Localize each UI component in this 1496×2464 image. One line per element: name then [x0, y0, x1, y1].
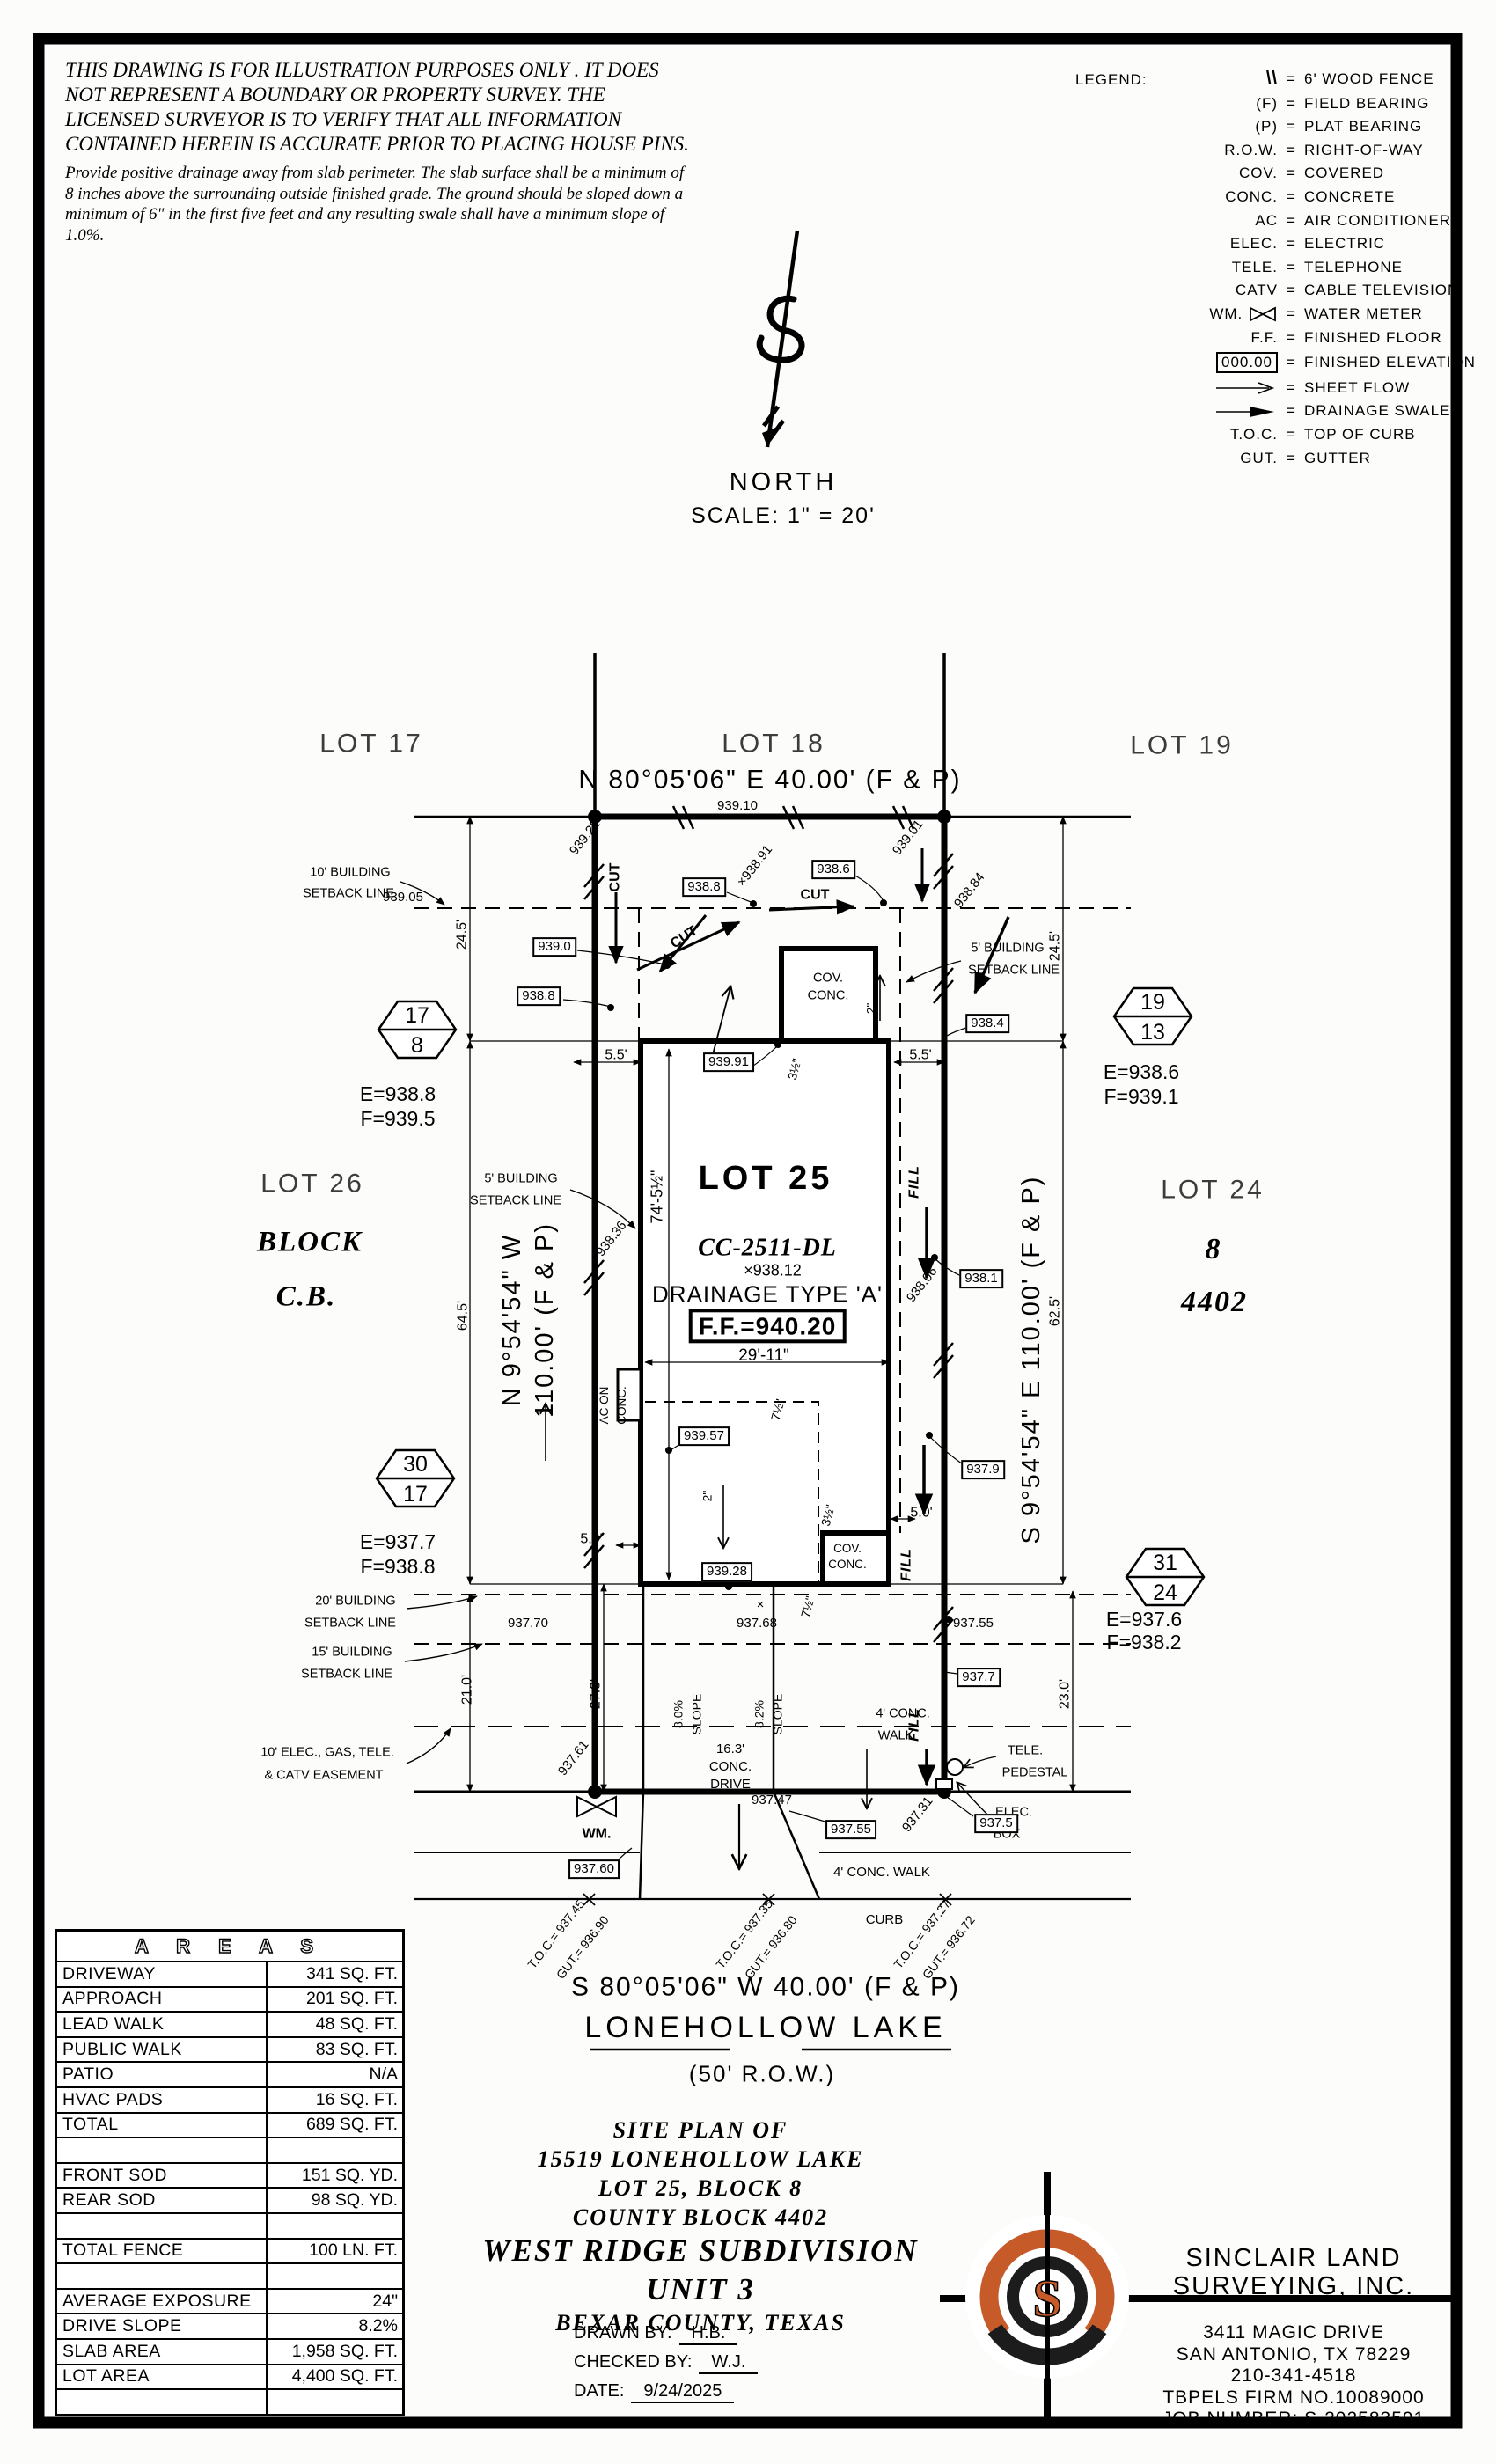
plan-label: S 80°05'06" W 40.00' (F & P)	[571, 1973, 960, 2001]
plan-label: CC-2511-DL	[698, 1235, 837, 1260]
plan-label: N 80°05'06" E 40.00' (F & P)	[578, 766, 961, 794]
plan-label: 938.6	[811, 860, 855, 879]
plan-label: FILL	[900, 1548, 915, 1581]
plan-label: 937.60	[568, 1859, 620, 1879]
plan-label: 938.84	[952, 870, 988, 911]
plan-label: ×	[757, 1598, 765, 1612]
plan-label: WM.	[583, 1828, 612, 1843]
plan-label: 939.01	[891, 818, 927, 858]
plan-label: CUT	[801, 889, 830, 904]
plan-label: 8.0%	[672, 1700, 686, 1728]
plan-label: F=939.1	[1104, 1086, 1178, 1107]
plan-label: 15' BUILDING	[312, 1646, 392, 1659]
plan-label: 5.0'	[580, 1533, 602, 1548]
plan-label: LOT 26	[260, 1170, 364, 1198]
plan-label: F=938.2	[1106, 1632, 1181, 1653]
plan-label: CURB	[866, 1913, 904, 1927]
plan-label: E=938.8	[360, 1083, 436, 1104]
plan-label: CONC.	[828, 1558, 867, 1571]
plan-label: 5.5'	[605, 1049, 627, 1064]
plan-label: CUT	[609, 863, 624, 892]
plan-label: AC ON	[598, 1387, 611, 1425]
plan-label: 5' BUILDING	[484, 1172, 557, 1185]
plan-label: SETBACK LINE	[470, 1194, 561, 1207]
plan-label: 24.5'	[456, 920, 471, 950]
plan-label: C.B.	[276, 1282, 337, 1313]
plan-label: 937.61	[556, 1738, 592, 1778]
plan-label: 2"	[865, 1003, 878, 1015]
plan-label: E=937.7	[360, 1531, 436, 1552]
survey-sheet: 178191330173124 S THIS DRAWING IS FOR IL…	[0, 0, 1496, 2464]
plan-label: 10' BUILDING	[310, 866, 390, 879]
plan-label: CONC.	[616, 1386, 628, 1425]
plan-label: CUT	[669, 924, 701, 952]
plan-label: 939.22	[568, 818, 604, 858]
plan-label: 74'-5½"	[649, 1170, 666, 1224]
plan-label: ×938.91	[735, 843, 775, 890]
plan-label: 938.06	[905, 1265, 941, 1305]
plan-label: CONC.	[709, 1760, 752, 1774]
plan-label: 939.28	[701, 1562, 752, 1581]
plan-label: 8	[1206, 1234, 1221, 1265]
plan-label: E=937.6	[1106, 1609, 1182, 1630]
plan-label: 10' ELEC., GAS, TELE.	[260, 1746, 394, 1759]
plan-label: 939.10	[717, 799, 758, 813]
plan-label: 939.0	[532, 937, 576, 957]
plan-label: 5.0'	[910, 1507, 932, 1522]
plan-label: ×938.12	[744, 1263, 802, 1280]
plan-label: SETBACK LINE	[968, 964, 1060, 977]
plan-label: DRAINAGE TYPE 'A'	[652, 1282, 883, 1306]
plan-label: 3½"	[819, 1503, 838, 1527]
plan-label: 64.5'	[457, 1301, 472, 1331]
plan-label: F.F.=940.20	[689, 1309, 847, 1343]
plan-label: 29'-11"	[738, 1347, 789, 1365]
plan-label: 23.0'	[1059, 1679, 1074, 1709]
plan-label: 110.00' (F & P)	[532, 1222, 558, 1418]
plan-label: 937.55	[953, 1617, 994, 1631]
plan-label: WALK	[878, 1729, 914, 1742]
plan-label: COV.	[833, 1543, 862, 1555]
plan-label: 938.1	[959, 1269, 1003, 1288]
plan-label: 5.5'	[909, 1049, 931, 1064]
plan-label: LOT 19	[1130, 731, 1234, 759]
plan-label: 4402	[1181, 1287, 1248, 1318]
plan-label: & CATV EASEMENT	[264, 1769, 383, 1782]
plan-label: E=938.6	[1104, 1061, 1179, 1082]
plan-label: F=939.5	[360, 1108, 435, 1129]
plan-label: 3½"	[786, 1057, 804, 1081]
plan-label: 20' BUILDING	[315, 1595, 395, 1608]
plan-label: LONEHOLLOW LAKE	[584, 2013, 946, 2044]
plan-label: 8.2%	[753, 1700, 766, 1728]
plan-label: LOT 25	[699, 1162, 833, 1197]
plan-label: SETBACK LINE	[303, 887, 394, 900]
plan-label: 937.55	[825, 1820, 876, 1839]
plan-label: N 9°54'54" W	[499, 1234, 525, 1407]
plan-label: LOT 24	[1161, 1176, 1265, 1204]
plan-label: 62.5'	[1049, 1296, 1064, 1326]
plan-label: FILL	[908, 1165, 923, 1199]
plan-label: 21.0'	[461, 1675, 476, 1705]
plan-label: TELE.	[1008, 1744, 1043, 1757]
plan-label: 937.68	[737, 1617, 777, 1631]
plan-label: S 9°54'54" E 110.00' (F & P)	[1018, 1176, 1045, 1544]
plan-label: 938.4	[965, 1014, 1009, 1033]
plan-label: CONC.	[808, 989, 849, 1002]
plan-label: DRIVE	[710, 1778, 751, 1792]
plan-label: 938.8	[517, 986, 561, 1006]
plan-label: 7½"	[769, 1397, 788, 1421]
plan-label: 937.47	[752, 1793, 792, 1808]
plan-label: 2"	[701, 1491, 715, 1502]
plan-label: 937.31	[900, 1794, 936, 1835]
plan-label: 937.70	[508, 1617, 548, 1631]
plan-label: 938.36	[594, 1219, 630, 1259]
plan-label: 7½"	[799, 1595, 818, 1618]
plan-label: 938.8	[682, 877, 726, 897]
plan-label: SLOPE	[691, 1694, 704, 1735]
plan-label: SETBACK LINE	[304, 1617, 396, 1630]
plan-label: BLOCK	[257, 1228, 363, 1258]
plan-label: LOT 17	[319, 730, 423, 758]
plan-label: 27.3'	[590, 1679, 605, 1709]
plan-label: 937.9	[961, 1460, 1005, 1479]
plan-label: F=938.8	[360, 1556, 435, 1577]
plan-label: PEDESTAL	[1002, 1766, 1068, 1779]
plan-label: (50' R.O.W.)	[689, 2062, 835, 2086]
plan-label: COV.	[813, 972, 843, 985]
plan-label: 4' CONC.	[876, 1707, 930, 1720]
plan-label: 16.3'	[716, 1742, 744, 1756]
plan-labels-layer: LOT 17LOT 18LOT 19N 80°05'06" E 40.00' (…	[0, 0, 1496, 2464]
plan-label: LOT 18	[722, 730, 825, 758]
plan-label: 24.5'	[1049, 931, 1064, 961]
plan-label: 939.91	[703, 1052, 754, 1072]
plan-label: SLOPE	[772, 1694, 785, 1735]
plan-label: 937.5	[974, 1814, 1018, 1833]
plan-label: 939.57	[678, 1426, 730, 1446]
plan-label: SETBACK LINE	[301, 1668, 392, 1681]
plan-label: 4' CONC. WALK	[833, 1866, 930, 1880]
plan-label: 5' BUILDING	[971, 942, 1044, 955]
plan-label: 937.7	[957, 1668, 1001, 1687]
